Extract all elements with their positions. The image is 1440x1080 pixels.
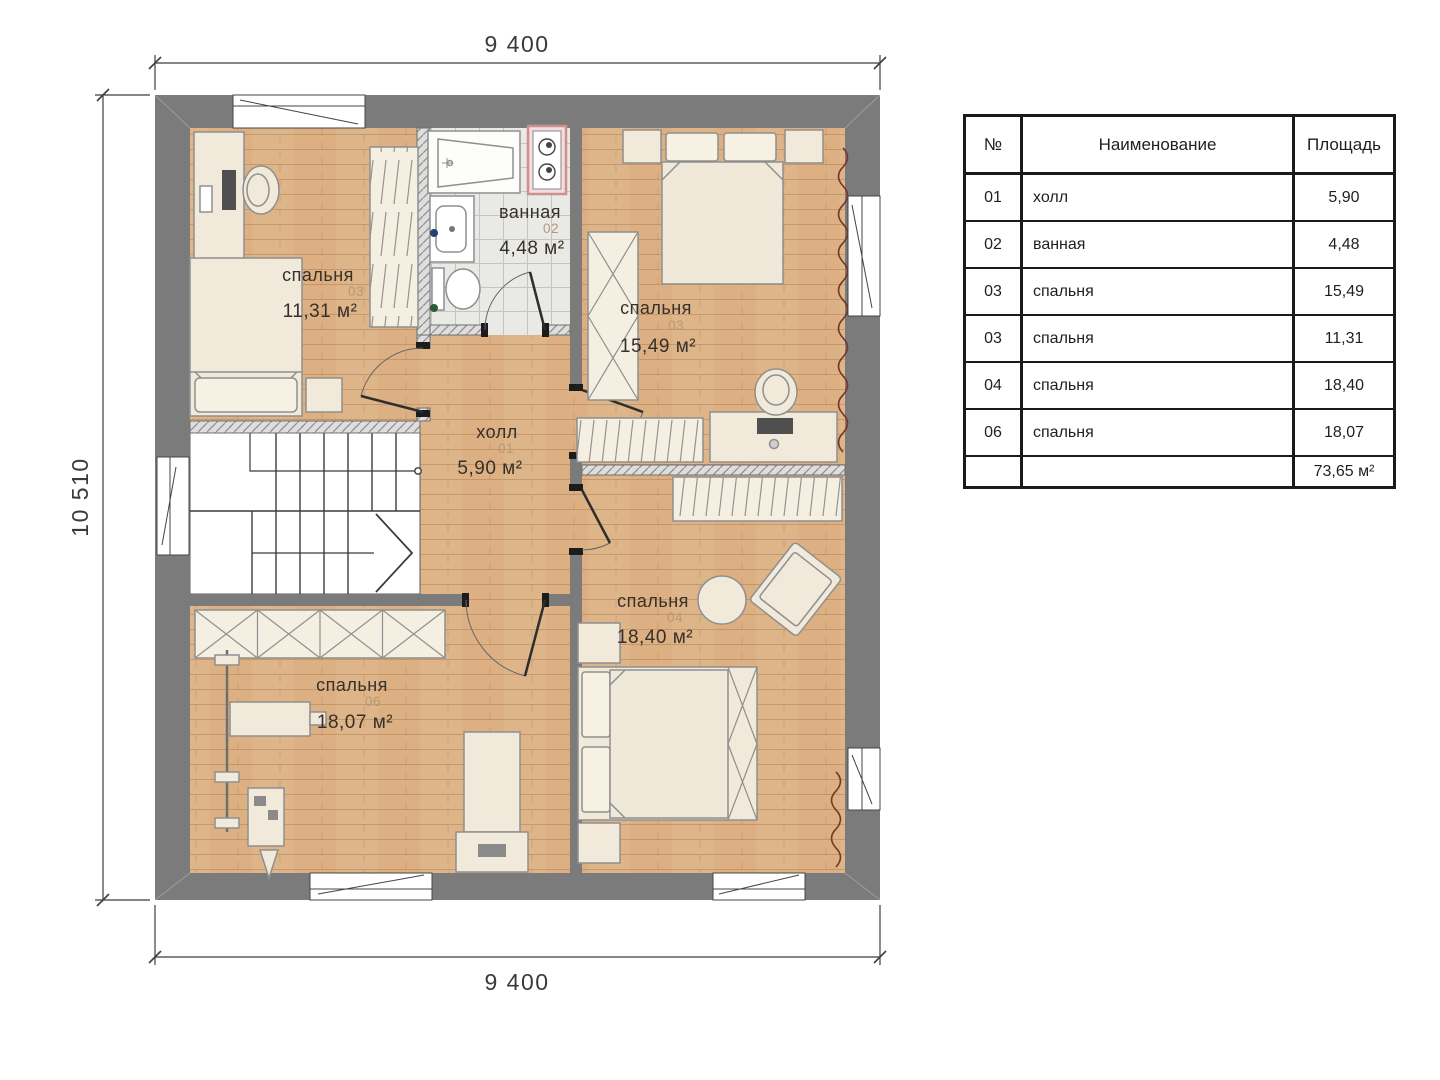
legend-row-name: холл	[1023, 175, 1295, 222]
bedroom4-wardrobe	[673, 477, 842, 521]
legend-row-name: спальня	[1023, 316, 1295, 363]
bedroom6-label-name: спальня	[316, 675, 388, 695]
legend-total-empty-num	[966, 457, 1023, 486]
bathroom-label-number: 02	[543, 221, 559, 236]
wall-bedroom1-bottom	[190, 421, 420, 433]
legend-row-area: 5,90	[1295, 175, 1393, 222]
bedroom1-label-area: 11,31 м²	[283, 301, 358, 322]
legend-row-num: 03	[966, 316, 1023, 363]
legend-total-empty-name	[1023, 457, 1295, 486]
bedroom6-label-number: 06	[365, 694, 381, 709]
bedroom6-dresser	[456, 732, 528, 872]
dimension-top	[149, 55, 886, 90]
bedroom4-nightstand-bottom	[578, 823, 620, 863]
bedroom3-chair	[755, 369, 797, 415]
bedroom3-desk	[710, 412, 837, 462]
window-right-bedroom3	[848, 196, 880, 316]
bathroom-sink	[430, 196, 474, 262]
bedroom6-wardrobe	[195, 610, 445, 658]
legend-row-num: 04	[966, 363, 1023, 410]
legend-row-area: 4,48	[1295, 222, 1393, 269]
legend-row-area: 18,07	[1295, 410, 1393, 457]
legend-row-num: 06	[966, 410, 1023, 457]
bedroom1-wardrobe	[370, 147, 418, 327]
legend-row-area: 11,31	[1295, 316, 1393, 363]
bedroom4-label-number: 04	[667, 610, 683, 625]
dimension-bottom-value: 9 400	[484, 969, 549, 995]
bedroom4-nightstand-top	[578, 623, 620, 663]
washing-machine	[528, 126, 566, 194]
bedroom4-bed	[578, 667, 757, 820]
bedroom4-round-table	[698, 576, 746, 624]
legend-row-name: спальня	[1023, 363, 1295, 410]
bedroom1-chair	[243, 166, 279, 214]
legend-header-area: Площадь	[1295, 117, 1393, 175]
window-bottom-left	[310, 873, 432, 900]
legend-row-name: спальня	[1023, 269, 1295, 316]
legend-row-num: 03	[966, 269, 1023, 316]
legend-header-name: Наименование	[1023, 117, 1295, 175]
bedroom1-label-name: спальня	[282, 265, 354, 285]
bedroom4-label-name: спальня	[617, 591, 689, 611]
bedroom1-label-number: 03	[348, 284, 364, 299]
bedroom4-label-area: 18,40 м²	[617, 627, 693, 648]
legend-row-name: ванная	[1023, 222, 1295, 269]
dimension-left	[95, 89, 150, 906]
legend-row-name: спальня	[1023, 410, 1295, 457]
bedroom1-nightstand	[306, 378, 342, 412]
wall-bedroom3-bottom	[582, 465, 845, 475]
floor-plan-page: спальня 03 11,31 м² ванная 02 4,48 м² сп…	[0, 0, 1440, 1080]
bathtub	[428, 131, 520, 193]
window-top	[233, 95, 365, 128]
legend-row-area: 15,49	[1295, 269, 1393, 316]
bedroom3-label-name: спальня	[620, 298, 692, 318]
bedroom3-label-area: 15,49 м²	[620, 336, 696, 357]
bedroom3-dresser	[577, 418, 703, 462]
wall-stairs-bottom	[190, 594, 466, 606]
water-tap-dot	[430, 229, 438, 237]
hall-label-area: 5,90 м²	[457, 458, 522, 479]
hall-label-name: холл	[476, 422, 517, 442]
dimension-top-value: 9 400	[484, 31, 549, 57]
bedroom6-label-area: 18,07 м²	[317, 712, 393, 733]
dimension-bottom	[149, 905, 886, 965]
bathroom-label-name: ванная	[499, 202, 561, 222]
window-right-bedroom4	[848, 748, 880, 810]
wall-bathroom-bottom-a	[430, 325, 485, 335]
legend-row-num: 02	[966, 222, 1023, 269]
legend-header-number: №	[966, 117, 1023, 175]
window-left-stairs	[157, 457, 189, 555]
wall-stairs-bottom-stub	[545, 594, 582, 606]
hall-label-number: 01	[498, 441, 514, 456]
stairwell-floor	[190, 433, 420, 594]
bedroom3-label-number: 03	[668, 318, 684, 333]
dimension-left-value: 10 510	[67, 457, 93, 536]
bathroom-label-area: 4,48 м²	[499, 238, 564, 259]
room-legend-table: № Наименование Площадь 01 холл 5,90 02 в…	[963, 114, 1396, 489]
wall-center-upper	[570, 128, 582, 390]
legend-row-num: 01	[966, 175, 1023, 222]
water-tap-dot2	[430, 304, 438, 312]
legend-row-area: 18,40	[1295, 363, 1393, 410]
window-bottom-right	[713, 873, 805, 900]
toilet	[432, 268, 480, 310]
legend-total-area: 73,65 м²	[1295, 457, 1393, 486]
